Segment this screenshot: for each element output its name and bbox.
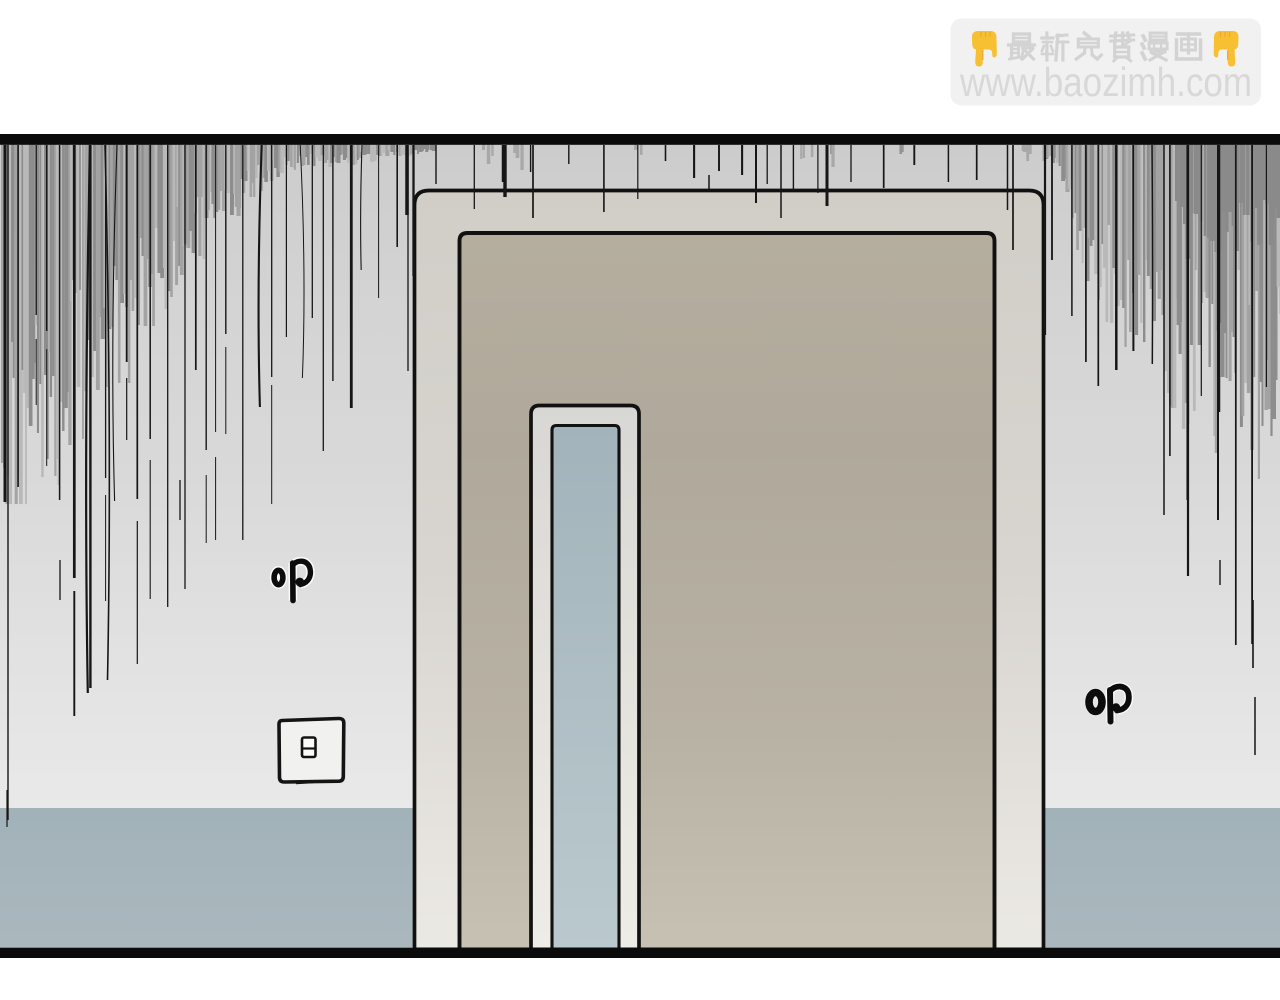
svg-text:www.baozimh.com: www.baozimh.com xyxy=(959,59,1252,105)
